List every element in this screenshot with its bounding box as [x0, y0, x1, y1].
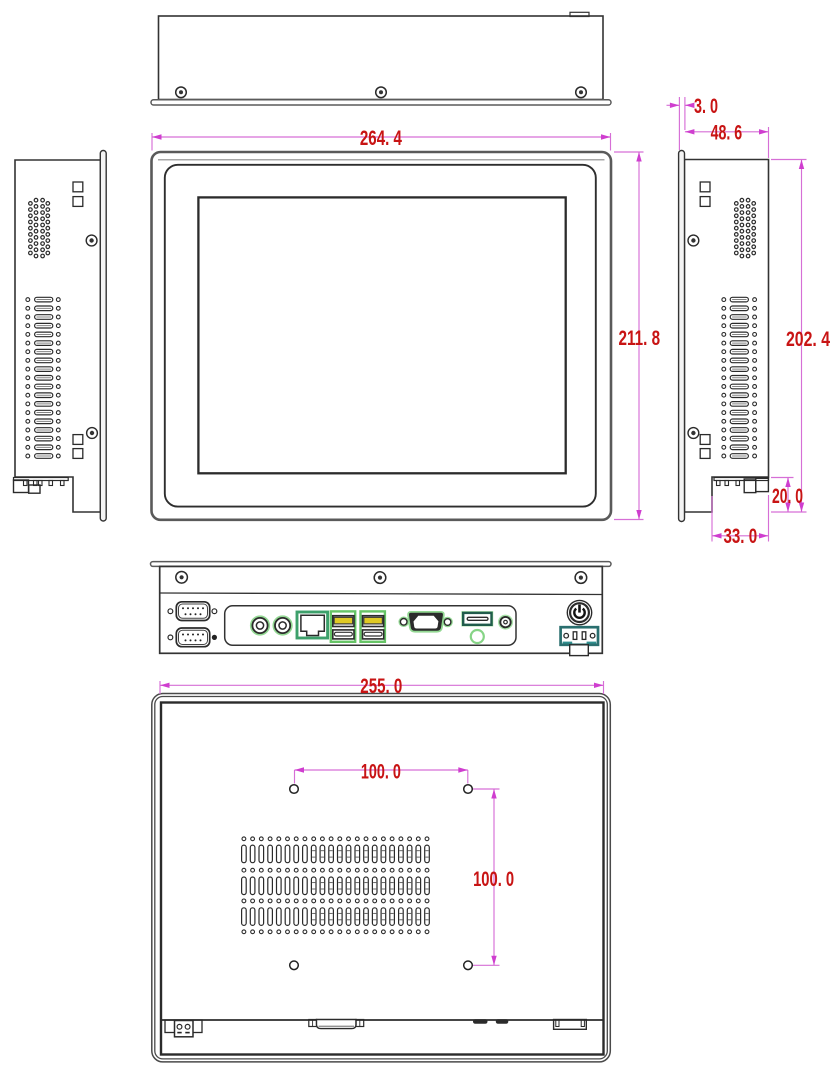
svg-text:20. 0: 20. 0 [772, 484, 803, 508]
svg-text:211. 8: 211. 8 [619, 326, 661, 350]
svg-text:48. 6: 48. 6 [711, 120, 743, 144]
svg-text:264. 4: 264. 4 [360, 126, 402, 150]
svg-text:3. 0: 3. 0 [694, 94, 718, 118]
svg-text:100. 0: 100. 0 [473, 867, 514, 891]
svg-text:100. 0: 100. 0 [361, 760, 401, 784]
svg-text:202. 4: 202. 4 [786, 327, 830, 351]
svg-text:33. 0: 33. 0 [724, 524, 758, 548]
svg-text:255. 0: 255. 0 [360, 674, 402, 698]
